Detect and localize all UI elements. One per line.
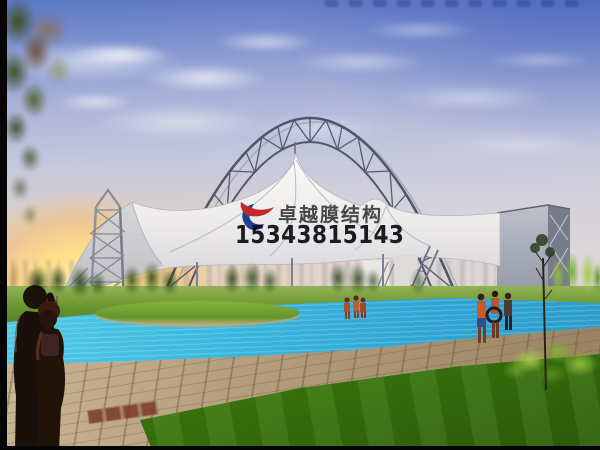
onlookers-foreground <box>14 285 65 450</box>
watermark-phone-number: 15343815143 <box>235 220 404 249</box>
rendering-canvas: 卓越膜结构 15343815143 <box>0 0 600 450</box>
bottom-frame-bar <box>0 446 600 450</box>
swimmers-right <box>477 291 512 343</box>
watermark: 卓越膜结构 15343815143 <box>230 194 410 260</box>
sapling-tree <box>530 234 555 390</box>
swimmers-middle <box>344 295 366 319</box>
left-frame-bar <box>0 0 7 450</box>
